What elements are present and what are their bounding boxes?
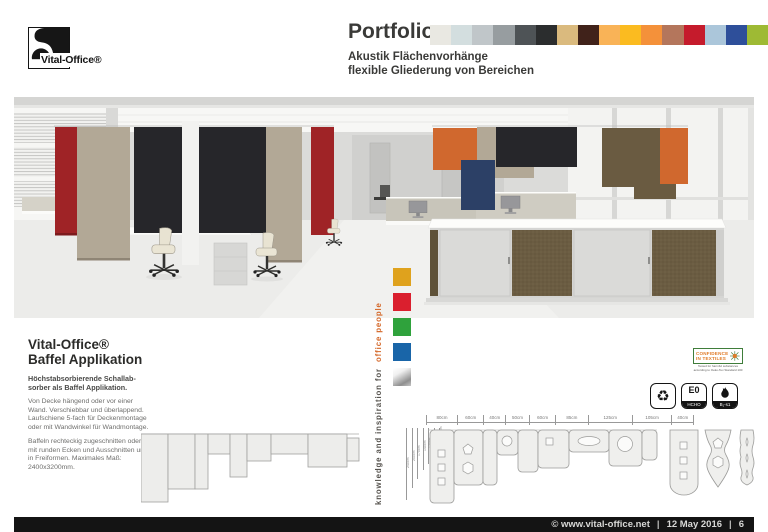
fabric-swatch	[705, 25, 726, 45]
fabric-swatch	[684, 25, 705, 45]
info-body-2: Baffeln rechteckig zugeschnitten oder mi…	[28, 438, 150, 472]
tagline-highlight: office people	[374, 302, 383, 362]
baffle-black	[134, 127, 182, 233]
fabric-swatch	[515, 25, 536, 45]
footer-date: 12 May 2016	[667, 519, 722, 530]
info-product-title: Baffel Applikation	[28, 352, 150, 367]
e0-label: E0	[688, 384, 699, 396]
technical-drawing: 240cm200cm170cm140cm120cm80cm40cm 80cm60…	[404, 406, 768, 510]
baffle-brown-step	[634, 187, 676, 199]
fabric-swatch-strip	[430, 25, 768, 45]
height-dimension: 200cm	[412, 428, 415, 488]
subtitle-line1: Akustik Flächenvorhänge	[348, 51, 534, 65]
baffle-navy	[461, 160, 495, 210]
subtitle-line2: flexible Gliederung von Bereichen	[348, 65, 534, 79]
fabric-swatch	[430, 25, 451, 45]
office-render-image	[14, 97, 754, 318]
tagline-prefix: knowledge and inspiration for	[374, 368, 383, 505]
sideboard	[424, 219, 730, 305]
oekotex-sun-icon	[730, 350, 740, 362]
baffle-red	[55, 127, 77, 235]
height-dimension: 170cm	[417, 428, 420, 479]
baffle-black	[496, 127, 577, 167]
fabric-swatch	[536, 25, 557, 45]
logo-wordmark: Vital-Office®	[40, 53, 104, 67]
sideboard-door-brown	[512, 230, 572, 296]
fabric-swatch	[599, 25, 620, 45]
fabric-swatch	[620, 25, 641, 45]
info-body-1: Von Decke hängend oder vor einer Wand. V…	[28, 398, 150, 432]
baffle-beige	[77, 127, 130, 260]
baffle-red	[311, 127, 334, 235]
color-square-green	[393, 318, 411, 336]
height-dimension: 240cm	[406, 428, 409, 500]
fabric-swatch	[747, 25, 768, 45]
footer-site: © www.vital-office.net	[551, 519, 650, 530]
page-title: Portfolio	[348, 20, 434, 44]
footer-page-number: 6	[739, 519, 744, 530]
color-square-silver	[393, 368, 411, 386]
info-lead: Höchstabsorbierende Schallab­sorber als …	[28, 374, 150, 392]
footer-bar: © www.vital-office.net | 12 May 2016 | 6	[14, 517, 754, 532]
recycling-badge: ♻	[650, 383, 676, 409]
color-square-blue	[393, 343, 411, 361]
recycle-icon: ♻	[656, 389, 669, 404]
fire-class-label: B₁-s1	[713, 401, 737, 408]
e0-formaldehyde-badge: E0 HCHO	[681, 383, 707, 409]
oekotex-certificate: CONFIDENCEIN TEXTILES Tested for harmful…	[693, 348, 743, 372]
fabric-swatch	[578, 25, 599, 45]
hcho-label: HCHO	[682, 401, 706, 408]
info-brand: Vital-Office®	[28, 337, 150, 352]
brand-color-squares	[393, 268, 411, 393]
fire-rating-badge: B₁-s1	[712, 383, 738, 409]
fabric-swatch	[726, 25, 747, 45]
flame-icon	[719, 386, 731, 399]
ceiling-band	[14, 97, 754, 105]
color-square-red	[393, 293, 411, 311]
page: Vital-Office® Portfolio Akustik Flächenv…	[0, 0, 768, 532]
baffle-shapes-drawing	[424, 424, 768, 510]
sideboard-door-brown	[652, 230, 716, 296]
fabric-swatch	[451, 25, 472, 45]
page-subtitle: Akustik Flächenvorhänge flexible Glieder…	[348, 51, 534, 78]
oekotex-note: Tested for harmful substances according …	[693, 365, 743, 372]
vertical-tagline: knowledge and inspiration foroffice peop…	[374, 302, 383, 505]
fabric-swatch	[493, 25, 514, 45]
oekotex-title: CONFIDENCEIN TEXTILES	[696, 351, 728, 361]
product-info: Vital-Office® Baffel Applikation Höchsta…	[28, 337, 150, 472]
fabric-swatch	[557, 25, 578, 45]
baffle-orange	[660, 128, 688, 184]
baffle-panels-left	[55, 121, 334, 265]
color-square-gold	[393, 268, 411, 286]
stepped-baffle-diagram	[141, 432, 369, 506]
baffle-black	[199, 127, 266, 233]
fabric-swatch	[641, 25, 662, 45]
fabric-swatch	[662, 25, 683, 45]
fabric-swatch	[472, 25, 493, 45]
